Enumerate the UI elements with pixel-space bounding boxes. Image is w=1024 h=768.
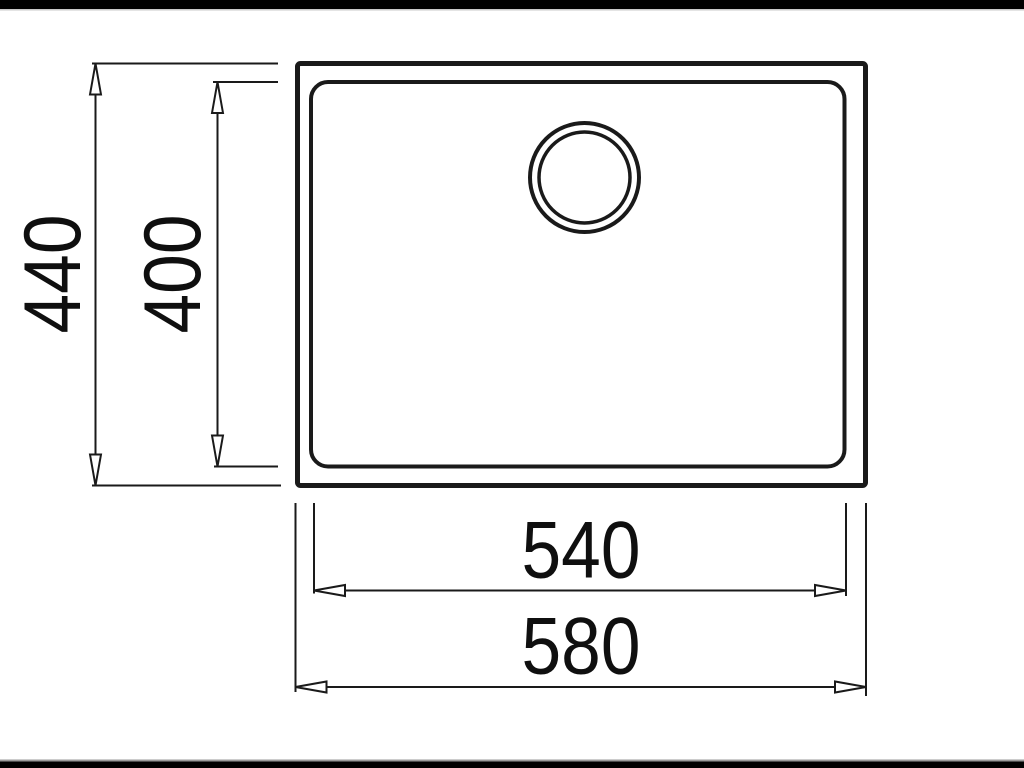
- arrow-down-icon: [212, 436, 223, 467]
- drawing-canvas: 440 400 540 580: [0, 0, 1024, 768]
- dimension-label-580: 580: [522, 601, 641, 691]
- sink-outer-rim: [298, 64, 866, 486]
- arrow-right-icon: [835, 682, 866, 693]
- bottom-bar: [0, 762, 1024, 768]
- top-bar: [0, 0, 1024, 9]
- drain-hole: [530, 123, 639, 232]
- arrow-left-icon: [296, 682, 327, 693]
- letterbox-top-bar: [0, 0, 1024, 11]
- drain-inner-circle: [539, 132, 630, 223]
- dimension-inner-height: 400: [128, 82, 278, 467]
- arrow-up-icon: [90, 64, 101, 95]
- arrow-left-icon: [314, 585, 345, 596]
- dimension-label-400: 400: [128, 215, 218, 334]
- sink-bowl: [311, 82, 845, 467]
- bottom-bar-edge: [0, 760, 1024, 762]
- arrow-down-icon: [90, 455, 101, 486]
- arrow-right-icon: [815, 585, 846, 596]
- dimension-label-540: 540: [522, 505, 641, 595]
- dimension-inner-width: 540: [314, 503, 846, 596]
- sink-technical-drawing: 440 400 540 580: [0, 0, 1024, 768]
- letterbox-bottom-bar: [0, 760, 1024, 768]
- top-bar-edge: [0, 9, 1024, 11]
- drain-outer-circle: [530, 123, 639, 232]
- sink-outline: [298, 64, 866, 486]
- arrow-up-icon: [212, 82, 223, 113]
- dimension-label-440: 440: [8, 215, 98, 334]
